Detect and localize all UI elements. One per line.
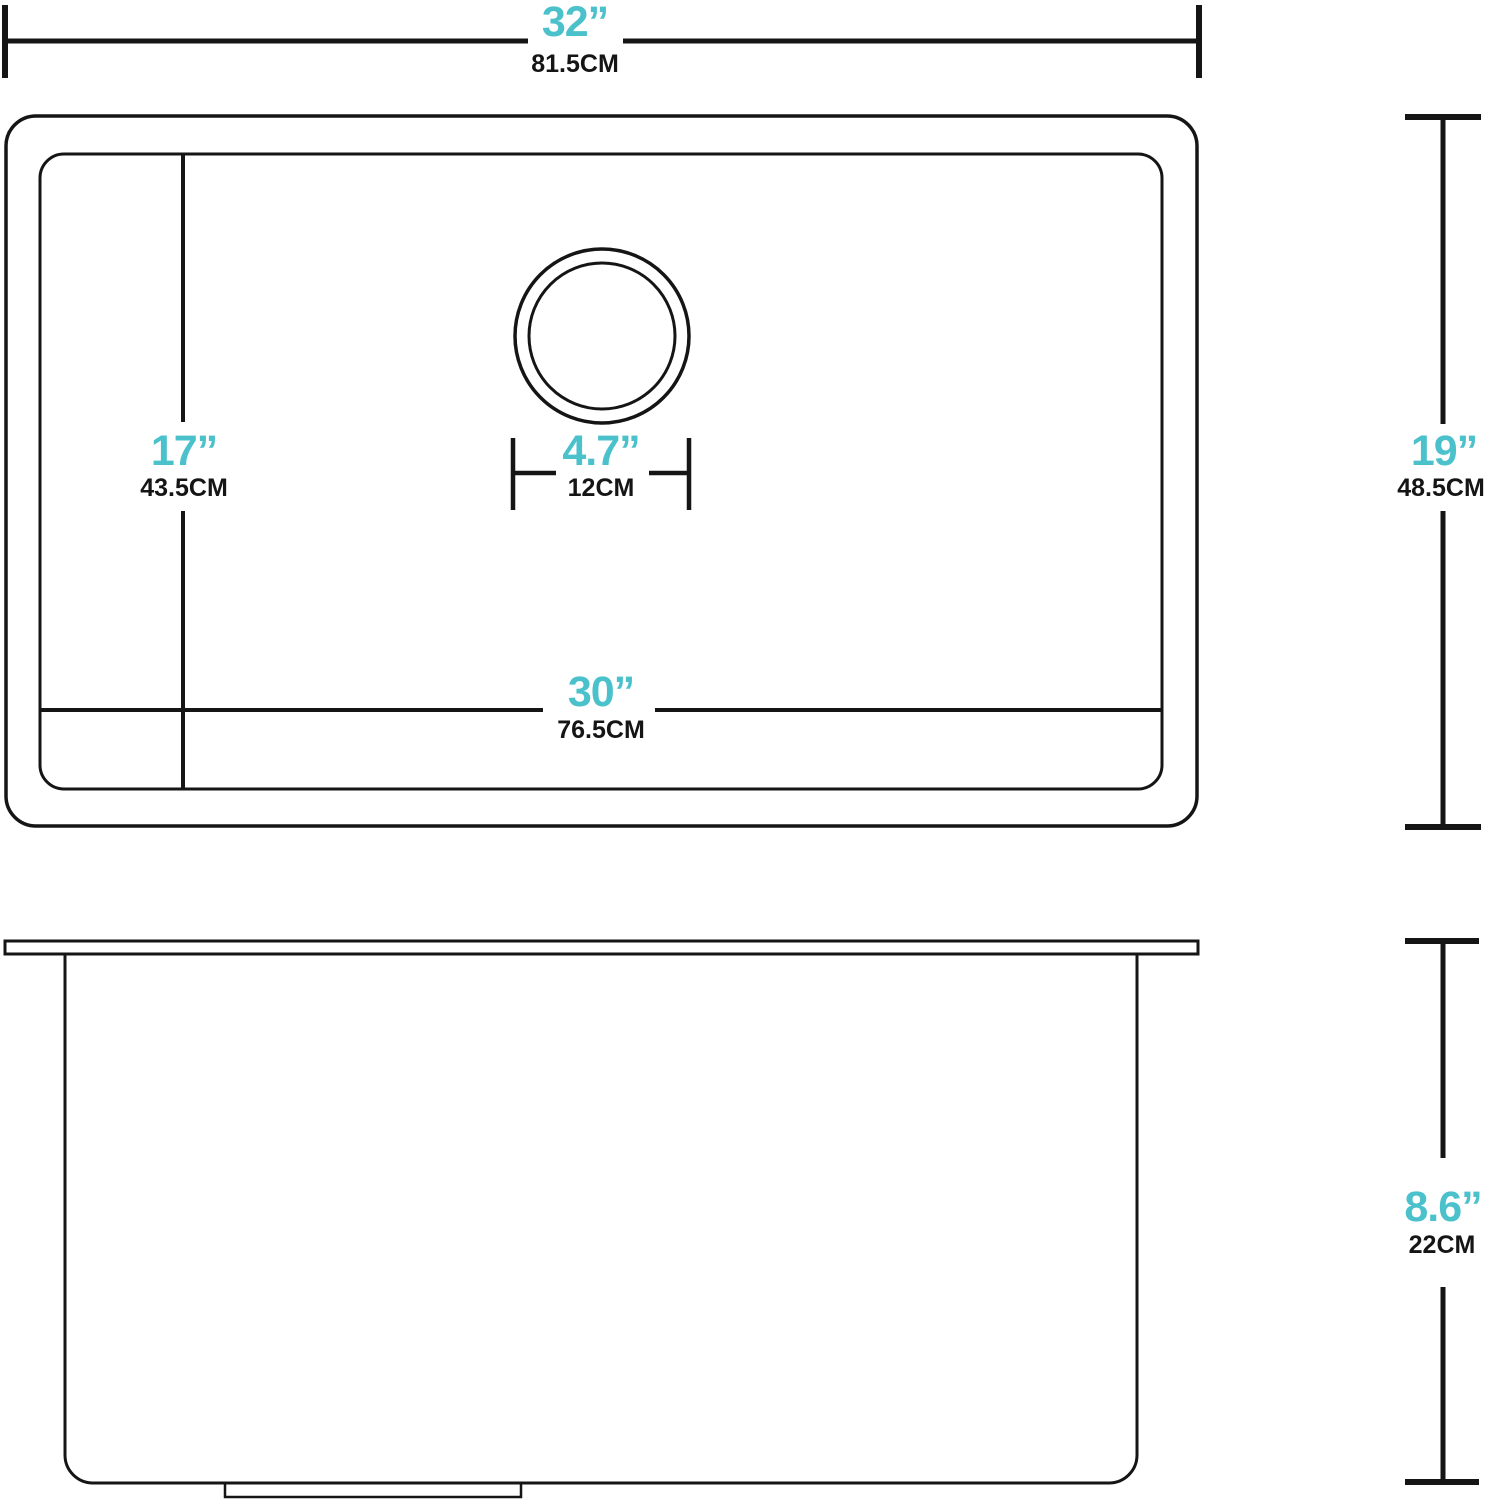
overall-depth-inches-label: 19” [1411, 430, 1477, 473]
side-view-bowl-outline [65, 954, 1137, 1483]
drain-diameter-cm-label: 12CM [568, 476, 635, 501]
bowl-width-inches-label: 30” [568, 671, 634, 714]
sink-dimension-diagram: 32” 81.5CM 17” 43.5CM 4.7” 12CM 30” 76.5… [0, 0, 1488, 1500]
overall-width-cm-label: 81.5CM [531, 52, 619, 77]
side-view-drain-stub [225, 1483, 521, 1497]
overall-width-inches-label: 32” [542, 1, 608, 44]
drain-diameter-inches-label: 4.7” [562, 430, 639, 473]
bowl-height-inches-label: 8.6” [1404, 1186, 1481, 1229]
bowl-height-cm-label: 22CM [1409, 1233, 1476, 1258]
drain-outer-circle [515, 249, 689, 423]
bowl-width-cm-label: 76.5CM [557, 718, 645, 743]
bowl-depth-inches-label: 17” [151, 430, 217, 473]
drain-inner-circle [529, 263, 675, 409]
side-view-rim-flange [5, 941, 1198, 954]
diagram-linework [0, 0, 1488, 1500]
overall-depth-cm-label: 48.5CM [1397, 476, 1485, 501]
sink-side-view [5, 941, 1198, 1497]
bowl-depth-cm-label: 43.5CM [140, 476, 228, 501]
